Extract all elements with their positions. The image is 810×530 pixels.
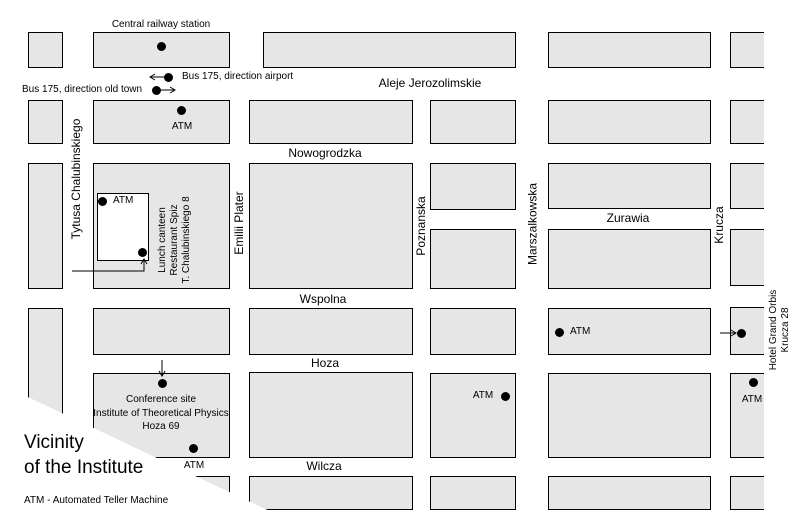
poi-label-hotel: Hotel Grand Orbis Krucza 28 [768, 280, 792, 380]
city-block [249, 163, 413, 289]
city-block [430, 476, 516, 510]
hotel-dot [737, 329, 746, 338]
hotel-line-1: Hotel Grand Orbis [768, 280, 780, 380]
city-block [730, 373, 764, 458]
railway-station-dot [157, 42, 166, 51]
city-block [93, 100, 230, 144]
city-block [548, 373, 711, 458]
canteen-line-1: Lunch canteen [157, 196, 169, 284]
poi-label-lunch-canteen: Lunch canteen Restaurant Spiz T. Chalubi… [157, 196, 193, 284]
atm-label-wspolna: ATM [570, 326, 590, 338]
city-block [730, 229, 764, 286]
street-label-poznanska: Poznanska [415, 191, 429, 261]
city-block [548, 32, 711, 68]
restaurant-dot [138, 248, 147, 257]
conference-line-2: Institute of Theoretical Physics [81, 407, 241, 421]
city-block [730, 32, 764, 68]
street-label-emilii-plater: Emilii Plater [233, 183, 247, 263]
atm-dot-hoza [501, 392, 510, 401]
poi-label-conference-site: Conference site Institute of Theoretical… [81, 393, 241, 434]
city-block [730, 476, 764, 510]
city-block [548, 100, 711, 144]
city-block [28, 100, 63, 144]
canteen-line-2: Restaurant Spiz [169, 196, 181, 284]
street-label-zurawia: Zurawia [607, 212, 650, 225]
city-block [730, 163, 764, 209]
conference-dot [158, 379, 167, 388]
atm-dot-nowogrodzka [177, 106, 186, 115]
poi-label-railway-station: Central railway station [112, 19, 210, 31]
atm-label-canteen: ATM [113, 195, 133, 207]
city-block [28, 163, 63, 289]
map-title-line-1: Vicinity [24, 430, 143, 455]
street-label-aleje-jerozolimskie: Aleje Jerozolimskie [379, 77, 482, 90]
city-block [249, 476, 413, 510]
atm-label-hoza: ATM [473, 390, 493, 402]
city-block [93, 308, 230, 355]
street-label-wilcza: Wilcza [306, 460, 341, 473]
atm-dot-krucza [749, 378, 758, 387]
map-title-line-2: of the Institute [24, 455, 143, 480]
city-block [430, 100, 516, 144]
bus-oldtown-stop-dot [152, 86, 161, 95]
city-block [730, 100, 764, 144]
street-label-wspolna: Wspolna [300, 293, 347, 306]
city-block [249, 372, 413, 458]
map-legend: ATM - Automated Teller Machine [24, 495, 168, 506]
atm-dot-canteen [98, 197, 107, 206]
street-label-tytusa-chalubinskiego: Tytusa Chalubinskiego [70, 109, 84, 249]
city-block [430, 229, 516, 289]
city-block [548, 476, 711, 510]
street-label-krucza: Krucza [713, 203, 727, 247]
atm-label-krucza: ATM [742, 394, 762, 406]
city-block [249, 308, 413, 355]
conference-line-1: Conference site [81, 393, 241, 407]
atm-dot-conference [189, 444, 198, 453]
poi-label-bus-old-town: Bus 175, direction old town [22, 84, 142, 96]
canteen-line-3: T. Chalubinskiego 8 [181, 196, 193, 284]
city-block [430, 373, 516, 458]
atm-label-conference: ATM [184, 460, 204, 472]
atm-label-nowogrodzka: ATM [172, 121, 192, 133]
city-block [548, 163, 711, 209]
map-title: Vicinity of the Institute [24, 430, 143, 480]
street-label-marszalkowska: Marszalkowska [527, 177, 541, 272]
hotel-line-2: Krucza 28 [780, 280, 792, 380]
atm-dot-wspolna [555, 328, 564, 337]
poi-label-bus-airport: Bus 175, direction airport [182, 71, 293, 83]
street-label-hoza: Hoza [311, 357, 339, 370]
city-block [548, 229, 711, 289]
city-block [28, 32, 63, 68]
street-label-nowogrodzka: Nowogrodzka [288, 147, 361, 160]
city-block [730, 307, 764, 355]
vicinity-map: Aleje Jerozolimskie Nowogrodzka Zurawia … [0, 0, 810, 530]
city-block [249, 100, 413, 144]
bus-airport-stop-dot [164, 73, 173, 82]
city-block [263, 32, 516, 68]
city-block [430, 163, 516, 210]
city-block [430, 308, 516, 355]
